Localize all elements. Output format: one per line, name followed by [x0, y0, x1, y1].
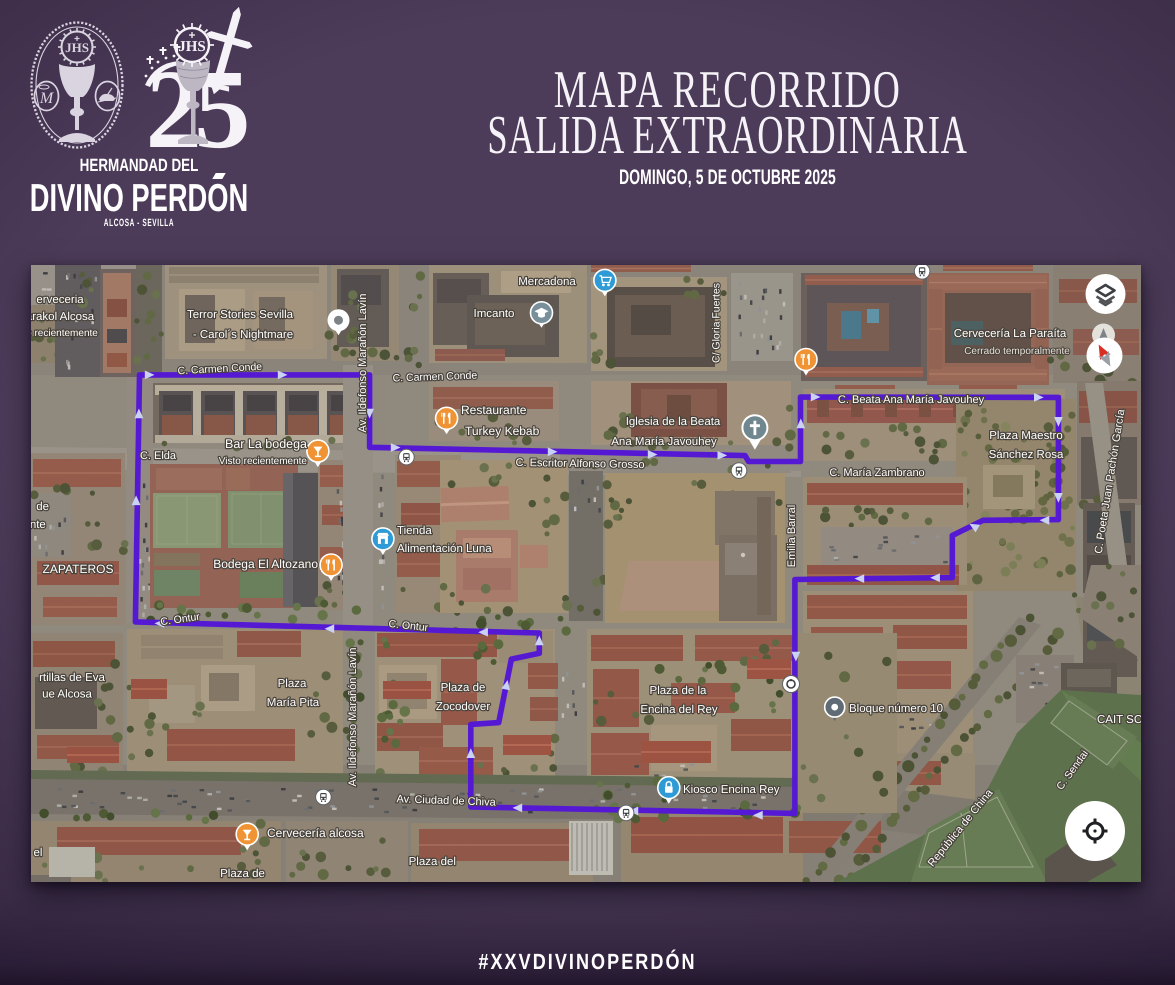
svg-text:Zocodover: Zocodover [436, 701, 491, 713]
svg-text:Plaza: Plaza [278, 678, 307, 690]
svg-text:Kiosco Encina Rey: Kiosco Encina Rey [683, 784, 780, 796]
svg-text:Plaza de: Plaza de [441, 682, 486, 694]
svg-text:Visto recientemente: Visto recientemente [219, 456, 308, 467]
svg-text:arakol Alcosa: arakol Alcosa [31, 311, 95, 323]
svg-text:Terror Stories Sevilla: Terror Stories Sevilla [187, 309, 294, 321]
svg-text:Av. Ildefonso Marañón Lavín: Av. Ildefonso Marañón Lavín [347, 647, 359, 786]
svg-text:Iglesia de la Beata: Iglesia de la Beata [626, 416, 721, 428]
svg-text:nte: nte [31, 519, 46, 531]
svg-text:Encina del Rey: Encina del Rey [640, 704, 718, 716]
svg-text:Av. Ildefonso Marañón Lavín: Av. Ildefonso Marañón Lavín [357, 293, 369, 432]
svg-text:Cerrado temporalmente: Cerrado temporalmente [964, 346, 1070, 357]
svg-text:Imcanto: Imcanto [474, 308, 515, 320]
svg-text:- Carol´s Nightmare: - Carol´s Nightmare [193, 329, 293, 341]
svg-text:Emilia Barral: Emilia Barral [786, 505, 798, 567]
svg-text:Mercadona: Mercadona [518, 276, 576, 288]
svg-text:C. Elda: C. Elda [140, 450, 177, 462]
svg-text:M: M [39, 90, 55, 107]
svg-text:Bar La bodega: Bar La bodega [225, 437, 307, 451]
svg-text:Cervecería alcosa: Cervecería alcosa [267, 826, 364, 840]
svg-text:María Pita: María Pita [267, 697, 320, 709]
svg-text:Plaza Maestro: Plaza Maestro [989, 430, 1063, 442]
svg-text:el: el [34, 847, 43, 859]
svg-text:Alimentación Luna: Alimentación Luna [397, 543, 492, 555]
svg-text:JHS: JHS [178, 39, 206, 55]
svg-text:de: de [36, 501, 49, 513]
svg-text:C. María Zambrano: C. María Zambrano [829, 467, 924, 479]
svg-text:Plaza de la: Plaza de la [650, 685, 708, 697]
svg-text:isto recientemente: isto recientemente [31, 328, 98, 339]
svg-text:Bodega El Altozano: Bodega El Altozano [213, 557, 318, 571]
svg-text:Cervecería La Paraíta: Cervecería La Paraíta [954, 328, 1067, 340]
svg-text:CAIT SCENA: CAIT SCENA [1097, 714, 1141, 726]
svg-text:C/ Gloria Fuertes: C/ Gloria Fuertes [711, 283, 723, 363]
svg-text:Bloque número 10: Bloque número 10 [849, 703, 943, 715]
svg-text:Restaurante: Restaurante [461, 403, 527, 417]
svg-text:Sánchez Rosa: Sánchez Rosa [989, 449, 1064, 461]
svg-text:rtillas de Eva: rtillas de Eva [39, 672, 105, 684]
svg-text:C. Escritor Alfonso Grosso: C. Escritor Alfonso Grosso [515, 457, 644, 471]
svg-text:C. Beata Ana María Javouhey: C. Beata Ana María Javouhey [838, 394, 985, 406]
svg-text:Plaza del: Plaza del [409, 856, 456, 868]
svg-text:Ana María Javouhey: Ana María Javouhey [611, 436, 717, 448]
svg-text:erveceria: erveceria [36, 294, 84, 306]
svg-text:Plaza de: Plaza de [220, 868, 265, 880]
svg-text:ZAPATEROS: ZAPATEROS [43, 562, 114, 576]
svg-text:ue Alcosa: ue Alcosa [42, 689, 92, 701]
svg-text:JHS: JHS [65, 40, 89, 55]
svg-text:Turkey Kebab: Turkey Kebab [465, 424, 540, 438]
svg-text:Tienda: Tienda [397, 525, 432, 537]
